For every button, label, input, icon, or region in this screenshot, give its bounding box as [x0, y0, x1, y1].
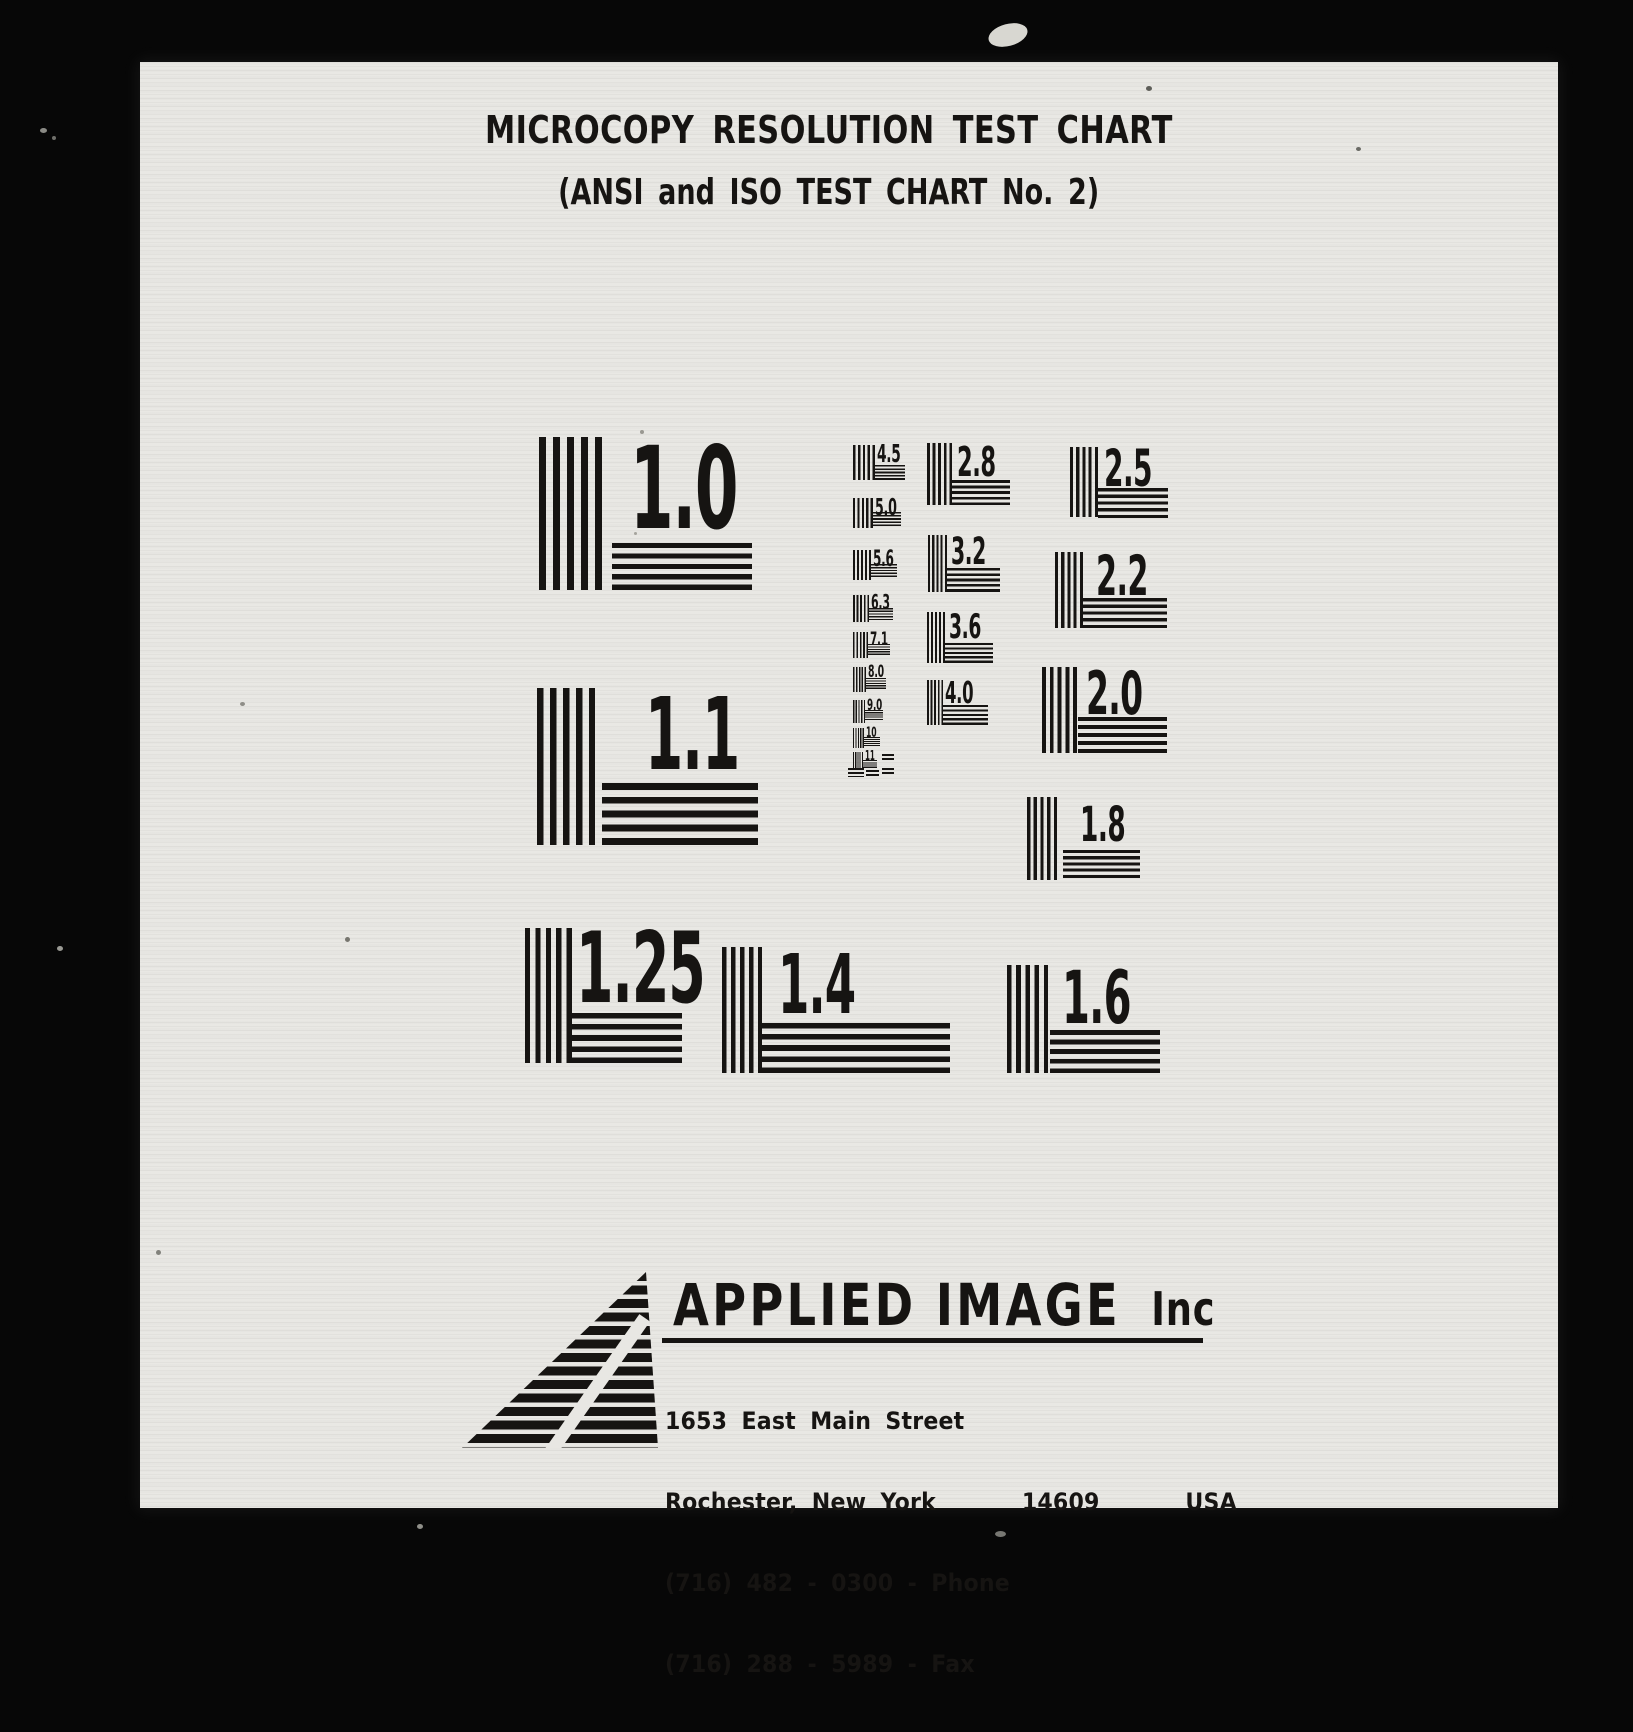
horizontal-bars: [1078, 717, 1167, 753]
logo-diagonal-slash: [539, 1314, 650, 1465]
page-title-text: MICROCOPY RESOLUTION TEST CHART: [485, 108, 1173, 152]
vertical-bars: [927, 612, 945, 663]
horizontal-bars: [762, 1023, 950, 1073]
dust-speck: [52, 136, 56, 140]
dust-speck: [57, 946, 63, 951]
horizontal-bars: [1063, 850, 1140, 878]
horizontal-bars: [871, 564, 897, 577]
vertical-bars: [927, 443, 952, 505]
vertical-bars: [1055, 552, 1083, 628]
horizontal-bars: [1098, 488, 1168, 518]
vertical-bars: [927, 680, 943, 725]
tiny-target-mark: [882, 768, 894, 775]
horizontal-bars: [1050, 1030, 1160, 1073]
vertical-bars: [853, 445, 875, 480]
company-suffix-text: Inc: [1151, 1291, 1215, 1328]
page-speck: [640, 430, 644, 434]
vertical-bars: [853, 700, 865, 723]
vertical-bars: [928, 535, 947, 592]
applied-image-logo: [458, 1272, 658, 1448]
chart-page: MICROCOPY RESOLUTION TEST CHART (ANSI an…: [140, 62, 1558, 1508]
dust-speck: [156, 1250, 161, 1255]
dust-speck: [1146, 86, 1152, 91]
dust-speck: [1356, 147, 1361, 151]
vertical-bars: [1070, 447, 1098, 517]
horizontal-bars: [875, 465, 905, 480]
page-subtitle-text: (ANSI and ISO TEST CHART No. 2): [558, 172, 1099, 213]
vertical-bars: [537, 688, 595, 845]
tiny-target-mark: [866, 770, 879, 778]
vertical-bars: [1027, 797, 1057, 880]
tiny-target-mark: [848, 768, 864, 777]
horizontal-bars: [868, 644, 890, 655]
target-label: 2.5: [1104, 450, 1152, 491]
vertical-bars: [853, 595, 869, 622]
target-label: 1.1: [645, 695, 739, 775]
target-label: 2.8: [957, 446, 996, 479]
dust-speck: [417, 1524, 423, 1529]
dust-speck: [995, 1531, 1006, 1537]
horizontal-bars: [947, 568, 1000, 592]
target-label: 1.0: [630, 443, 737, 534]
horizontal-bars: [873, 512, 901, 526]
fax-line: (716) 288 - 5989 - Fax: [665, 1651, 1237, 1678]
vertical-bars: [1042, 667, 1077, 753]
target-label: 1.25: [576, 930, 705, 1008]
page-speck: [634, 532, 637, 535]
target-label: 1.4: [778, 953, 855, 1019]
horizontal-bars: [952, 480, 1010, 505]
vertical-bars: [853, 498, 873, 528]
target-label: 1.6: [1062, 970, 1131, 1028]
page-speck: [345, 937, 350, 942]
vertical-bars: [853, 728, 864, 748]
target-label: 2.2: [1096, 554, 1148, 598]
dust-speck: [40, 128, 47, 133]
vertical-bars: [525, 928, 572, 1063]
phone-line: (716) 482 - 0300 - Phone: [665, 1570, 1237, 1597]
horizontal-bars: [602, 783, 758, 845]
page-speck: [240, 702, 245, 706]
vertical-bars: [853, 550, 871, 580]
horizontal-bars: [943, 705, 988, 725]
target-label: 3.2: [951, 537, 986, 567]
horizontal-bars: [572, 1013, 682, 1063]
target-label: 4.0: [945, 682, 973, 706]
company-name: APPLIED IMAGE Inc: [673, 1282, 1215, 1328]
horizontal-bars: [863, 760, 877, 768]
vertical-bars: [853, 632, 868, 658]
horizontal-bars: [866, 678, 886, 689]
vertical-bars: [722, 947, 762, 1073]
horizontal-bars: [865, 710, 883, 720]
target-label: 4.5: [877, 444, 901, 464]
horizontal-bars: [945, 643, 993, 663]
vertical-bars: [853, 667, 866, 692]
company-address: 1653 East Main Street Rochester, New Yor…: [665, 1354, 1237, 1732]
target-label: 2.0: [1086, 670, 1142, 718]
dust-speck: [986, 19, 1030, 51]
horizontal-bars: [864, 737, 880, 746]
scanned-test-chart: { "colors":{"bg":"#070707","paper":"#e8e…: [0, 0, 1633, 1579]
page-subtitle: (ANSI and ISO TEST CHART No. 2): [120, 172, 1538, 213]
address-line-2: Rochester, New York 14609 USA: [665, 1489, 1237, 1516]
page-title: MICROCOPY RESOLUTION TEST CHART: [120, 108, 1538, 152]
tiny-target-mark: [882, 754, 894, 761]
company-name-text: APPLIED IMAGE: [673, 1282, 1121, 1328]
brand-underline: [662, 1338, 1203, 1343]
vertical-bars: [539, 437, 602, 590]
vertical-bars: [1007, 965, 1048, 1073]
target-label: 1.8: [1080, 806, 1125, 844]
address-line-1: 1653 East Main Street: [665, 1408, 1237, 1435]
horizontal-bars: [612, 543, 752, 590]
horizontal-bars: [1083, 598, 1167, 628]
target-label: 3.6: [949, 614, 981, 641]
horizontal-bars: [869, 608, 893, 620]
